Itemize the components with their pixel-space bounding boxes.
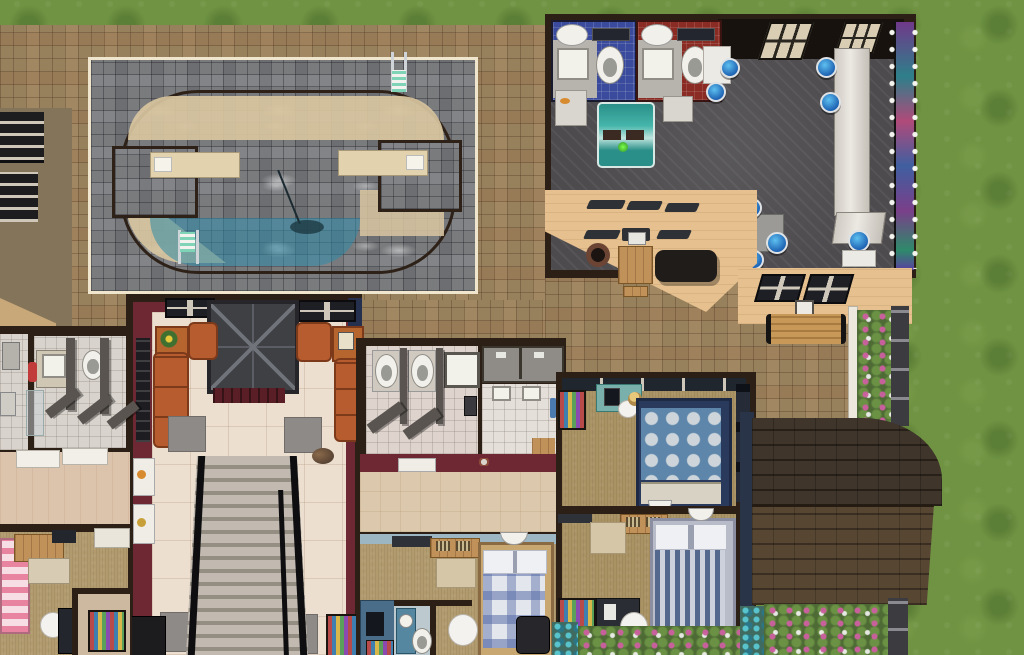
exterior-skylight-1 (754, 274, 806, 302)
flower-garden-south-1 (578, 626, 756, 655)
corridor-door-mat (398, 458, 436, 472)
wall-shelf-dark (558, 514, 592, 523)
bar-stool-8[interactable] (848, 230, 870, 252)
wall-sink-2[interactable] (522, 386, 541, 401)
bookshelf-polka-room[interactable] (558, 390, 586, 430)
armchair-right[interactable] (296, 322, 332, 362)
armchair-left[interactable] (188, 322, 218, 360)
dispenser-logo-2 (137, 518, 146, 527)
corridor-floor (360, 472, 562, 532)
pool-skimmer-shadow (290, 220, 324, 234)
side-room-fixture-1 (2, 342, 20, 370)
bbq-grill[interactable] (655, 250, 717, 282)
ensuite-bookshelf[interactable] (366, 640, 394, 655)
ensuite-toilet[interactable] (412, 628, 432, 654)
neighbor-roof-window-1 (0, 112, 44, 163)
exterior-window-4 (583, 230, 621, 239)
bar-counter[interactable] (834, 48, 870, 216)
bathroom-red-mirror (677, 28, 715, 41)
corridor-wall (360, 454, 562, 472)
bathroom-red-toilet-tank (641, 24, 673, 46)
exterior-window-2 (626, 201, 663, 210)
computer-screen-glow (604, 604, 616, 620)
stall-bathroom-sink[interactable] (444, 352, 480, 388)
computer-nook-screen (366, 612, 384, 636)
stone-curb-upper (891, 306, 909, 426)
closet-dark[interactable] (392, 536, 432, 547)
elevator-door-panel[interactable] (213, 388, 285, 403)
white-chair-center[interactable] (448, 614, 478, 646)
bathroom-blue-mirror (592, 28, 630, 41)
desk-monitor (604, 388, 620, 406)
toy-box[interactable] (88, 610, 126, 652)
lobby-window-2 (298, 300, 356, 322)
picnic-table[interactable] (618, 246, 653, 284)
dorm-right-top-wall (562, 378, 746, 391)
sunflower-plant (160, 330, 178, 348)
diving-pad-left (154, 157, 172, 172)
flower-bed-east (857, 310, 891, 424)
tv-unit-left[interactable] (128, 616, 166, 655)
stone-curb-lower (888, 598, 908, 655)
corridor-plate (478, 458, 490, 466)
wall-printer (628, 232, 646, 245)
vanity-sink (399, 614, 413, 628)
pool-ledge-top (128, 96, 444, 140)
fire-pit[interactable] (586, 243, 610, 267)
picnic-bench[interactable] (623, 286, 648, 297)
jukebox-light (618, 142, 628, 152)
mens-bathroom-sink[interactable] (42, 354, 66, 378)
stall-toilet-1[interactable] (375, 354, 398, 388)
shower-head-1 (496, 352, 506, 358)
bar-stool-6[interactable] (766, 232, 788, 254)
exterior-window-3 (664, 203, 700, 212)
dresser[interactable] (28, 558, 70, 584)
door-mat-1-logo (560, 98, 570, 104)
storage-box-2[interactable] (590, 522, 626, 554)
flower-garden-teal-right (740, 606, 764, 655)
flower-garden-south-2 (764, 604, 888, 655)
jukebox-grille-2 (626, 130, 644, 140)
bathroom-blue-sink[interactable] (557, 48, 589, 80)
exterior-window-6 (656, 230, 692, 239)
door-mat-2 (663, 96, 693, 122)
bar-stool-3[interactable] (816, 57, 837, 78)
floor-mat-1 (168, 416, 206, 452)
desk-radiator-1a (436, 541, 450, 551)
bathroom-blue-toilet-tank (556, 24, 588, 46)
pool-ladder-bottom-left[interactable] (180, 232, 195, 252)
door-mat-1 (555, 90, 587, 126)
pool-ladder-top-right[interactable] (392, 70, 406, 92)
wall-unit-dark (464, 396, 477, 416)
fire-extinguisher[interactable] (28, 362, 37, 382)
dining-table-white-2[interactable] (842, 250, 876, 267)
wall-sink-1[interactable] (492, 386, 511, 401)
white-cabinet-2 (62, 448, 108, 465)
dark-armchair[interactable] (516, 616, 550, 654)
bar-stool-1[interactable] (720, 58, 740, 78)
desk-radiator-2a (626, 517, 640, 527)
plaid-bed-pillows (483, 550, 547, 574)
arcade-lights-left (888, 24, 895, 269)
white-shelf (94, 528, 130, 548)
shower-stalls[interactable] (482, 346, 564, 383)
table-art-piece (338, 332, 354, 350)
wall-art (136, 338, 150, 442)
bathroom-red-sink[interactable] (642, 48, 674, 80)
roof-lower-slope (752, 504, 934, 605)
dispenser-logo-1 (137, 470, 146, 479)
wood-box (532, 438, 555, 454)
bar-stool-2[interactable] (706, 82, 726, 102)
arcade-lights-right (911, 24, 918, 269)
dog[interactable] (312, 448, 334, 464)
flower-garden-teal-left (552, 622, 578, 655)
side-room-fixture-2 (0, 392, 16, 416)
shower-head-2 (534, 352, 544, 358)
jukebox-grille-1 (603, 130, 621, 140)
elevator-shaft[interactable] (207, 300, 299, 394)
game-viewport (0, 0, 1024, 655)
desk-radiator-1b (456, 541, 470, 551)
park-bench[interactable] (766, 314, 846, 344)
polka-bed-blanket (641, 408, 721, 480)
white-cabinet-1 (16, 450, 60, 468)
bar-stool-4[interactable] (820, 92, 841, 113)
shower-divider (519, 346, 522, 379)
storage-box-1[interactable] (436, 558, 476, 588)
shower-glass (26, 390, 44, 436)
stall-toilet-2[interactable] (411, 354, 434, 388)
staircase[interactable] (186, 456, 308, 655)
exterior-window-1 (586, 200, 626, 209)
neighbor-roof-window-2 (0, 172, 38, 222)
desk-laptop[interactable] (52, 530, 76, 543)
bathroom-blue-toilet[interactable] (596, 46, 624, 84)
striped-bed-pillows (655, 524, 727, 550)
floor-mat-2 (284, 417, 322, 453)
pool-ladder-bottom-rail-2 (196, 230, 199, 264)
dorm-right-divider (556, 506, 756, 514)
diving-pad-right (406, 155, 424, 170)
